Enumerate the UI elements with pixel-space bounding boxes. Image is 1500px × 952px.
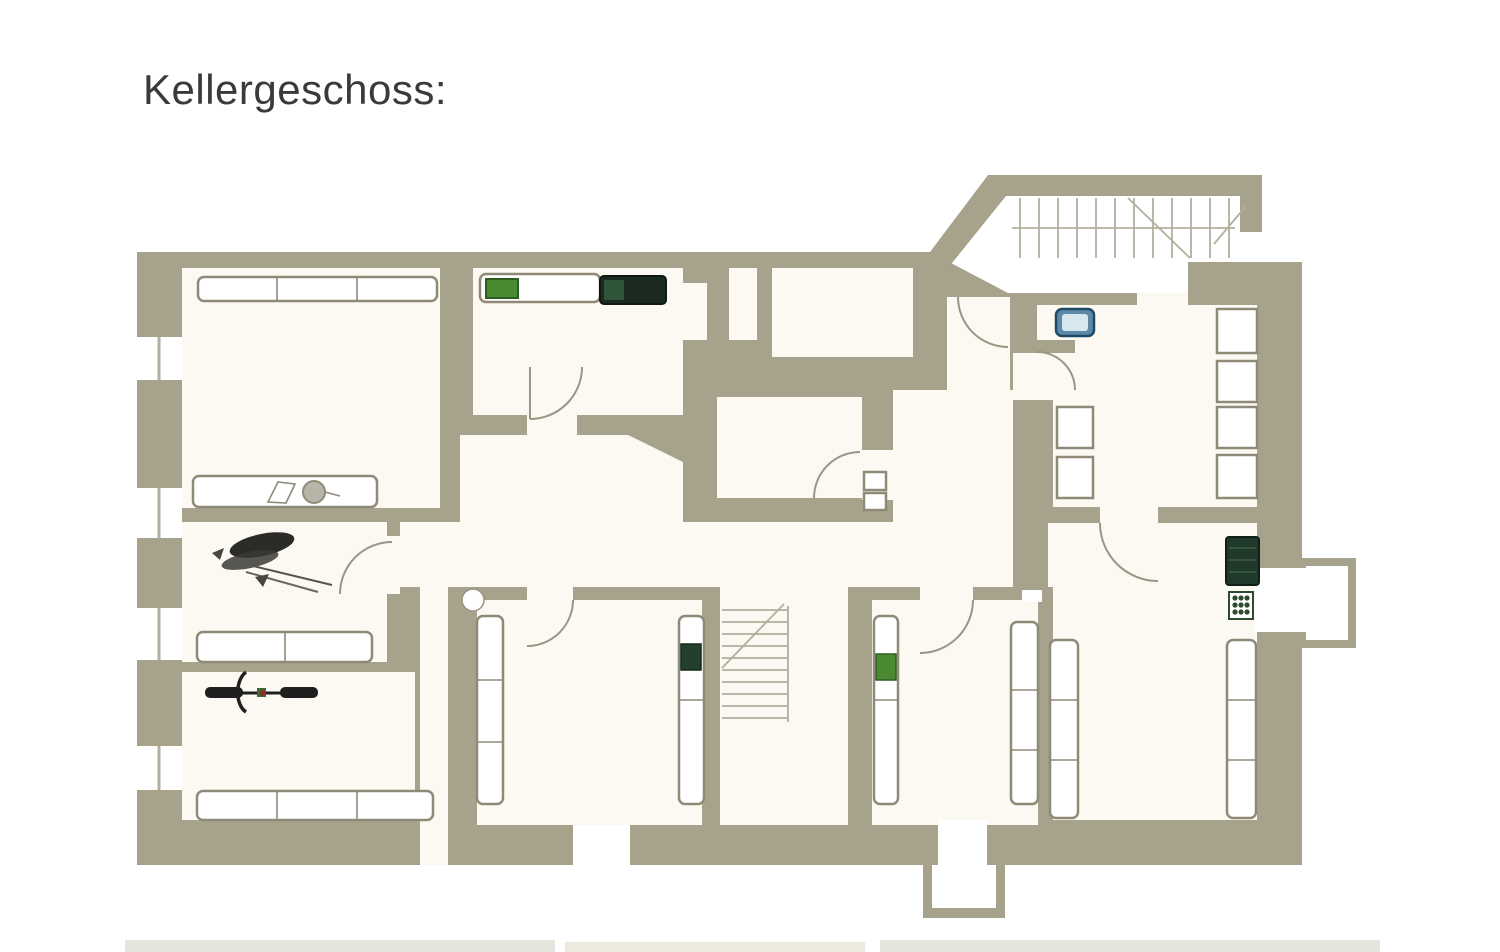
hall-east-arm bbox=[893, 390, 1013, 523]
small-north-room-floor bbox=[772, 268, 913, 357]
meter-box-symbol-1 bbox=[864, 472, 886, 490]
column-symbol bbox=[462, 589, 484, 611]
laundry-basket-symbol bbox=[1229, 592, 1253, 619]
corridor-b bbox=[729, 268, 757, 340]
bench-grinder-symbol bbox=[303, 481, 325, 503]
tall-shelf-symbol bbox=[874, 616, 898, 804]
meter-box-symbol-2 bbox=[864, 493, 886, 510]
shelf-box bbox=[1057, 457, 1093, 498]
light-well-south-opening bbox=[938, 820, 987, 865]
shelf-box bbox=[1217, 361, 1257, 402]
dark-green-crate-symbol bbox=[681, 644, 701, 670]
door-gap-storage-1 bbox=[527, 587, 573, 600]
shelf-box bbox=[1217, 309, 1257, 353]
door-gap-ne-room-top bbox=[1137, 293, 1188, 305]
tall-shelf-symbol bbox=[477, 616, 503, 804]
hall-upper bbox=[460, 435, 683, 525]
hall-entrance-corridor bbox=[947, 297, 1010, 390]
ne-room-stub-wall bbox=[1010, 340, 1075, 353]
light-well-south-inner bbox=[932, 865, 996, 908]
scanned-page: Kellergeschoss: bbox=[0, 0, 1500, 952]
door-gap-se-room bbox=[1100, 507, 1158, 523]
light-well-east-opening bbox=[1255, 568, 1306, 632]
light-well-east-inner bbox=[1306, 566, 1348, 640]
door-gap-storage-2 bbox=[920, 587, 973, 600]
exterior-stairs-symbol bbox=[1012, 198, 1246, 258]
west-strip bbox=[420, 587, 448, 865]
south-wall-gap bbox=[573, 825, 630, 885]
door-gap-workshop bbox=[387, 536, 400, 594]
hall-main bbox=[400, 522, 1013, 587]
shelf-box bbox=[1057, 407, 1093, 448]
shelf-box bbox=[1217, 455, 1257, 498]
ne-room-lower-left-wall bbox=[1013, 400, 1053, 523]
meter-room-floor bbox=[717, 397, 862, 498]
storage-south-1-floor bbox=[477, 600, 702, 825]
tall-shelf-symbol bbox=[1227, 640, 1256, 818]
tall-shelf-symbol bbox=[1011, 622, 1038, 804]
wall-box-marker bbox=[1022, 590, 1042, 602]
page-edge-artifact bbox=[125, 940, 1380, 952]
shelf-box bbox=[1217, 407, 1257, 448]
sink-symbol bbox=[1056, 309, 1094, 336]
boiler-panel bbox=[604, 280, 624, 300]
green-crate-symbol bbox=[486, 279, 518, 298]
niche-a bbox=[683, 283, 707, 340]
entrance-right-stub bbox=[1240, 175, 1262, 232]
tall-shelf-symbol bbox=[1050, 640, 1078, 818]
washing-machine-symbol bbox=[1226, 537, 1259, 585]
green-crate-symbol bbox=[876, 654, 896, 680]
top-left-cellar-floor bbox=[182, 268, 440, 508]
long-shelf-symbol bbox=[198, 277, 437, 301]
floor-plan bbox=[0, 0, 1500, 952]
bike-room-shelf-symbol bbox=[197, 791, 433, 820]
